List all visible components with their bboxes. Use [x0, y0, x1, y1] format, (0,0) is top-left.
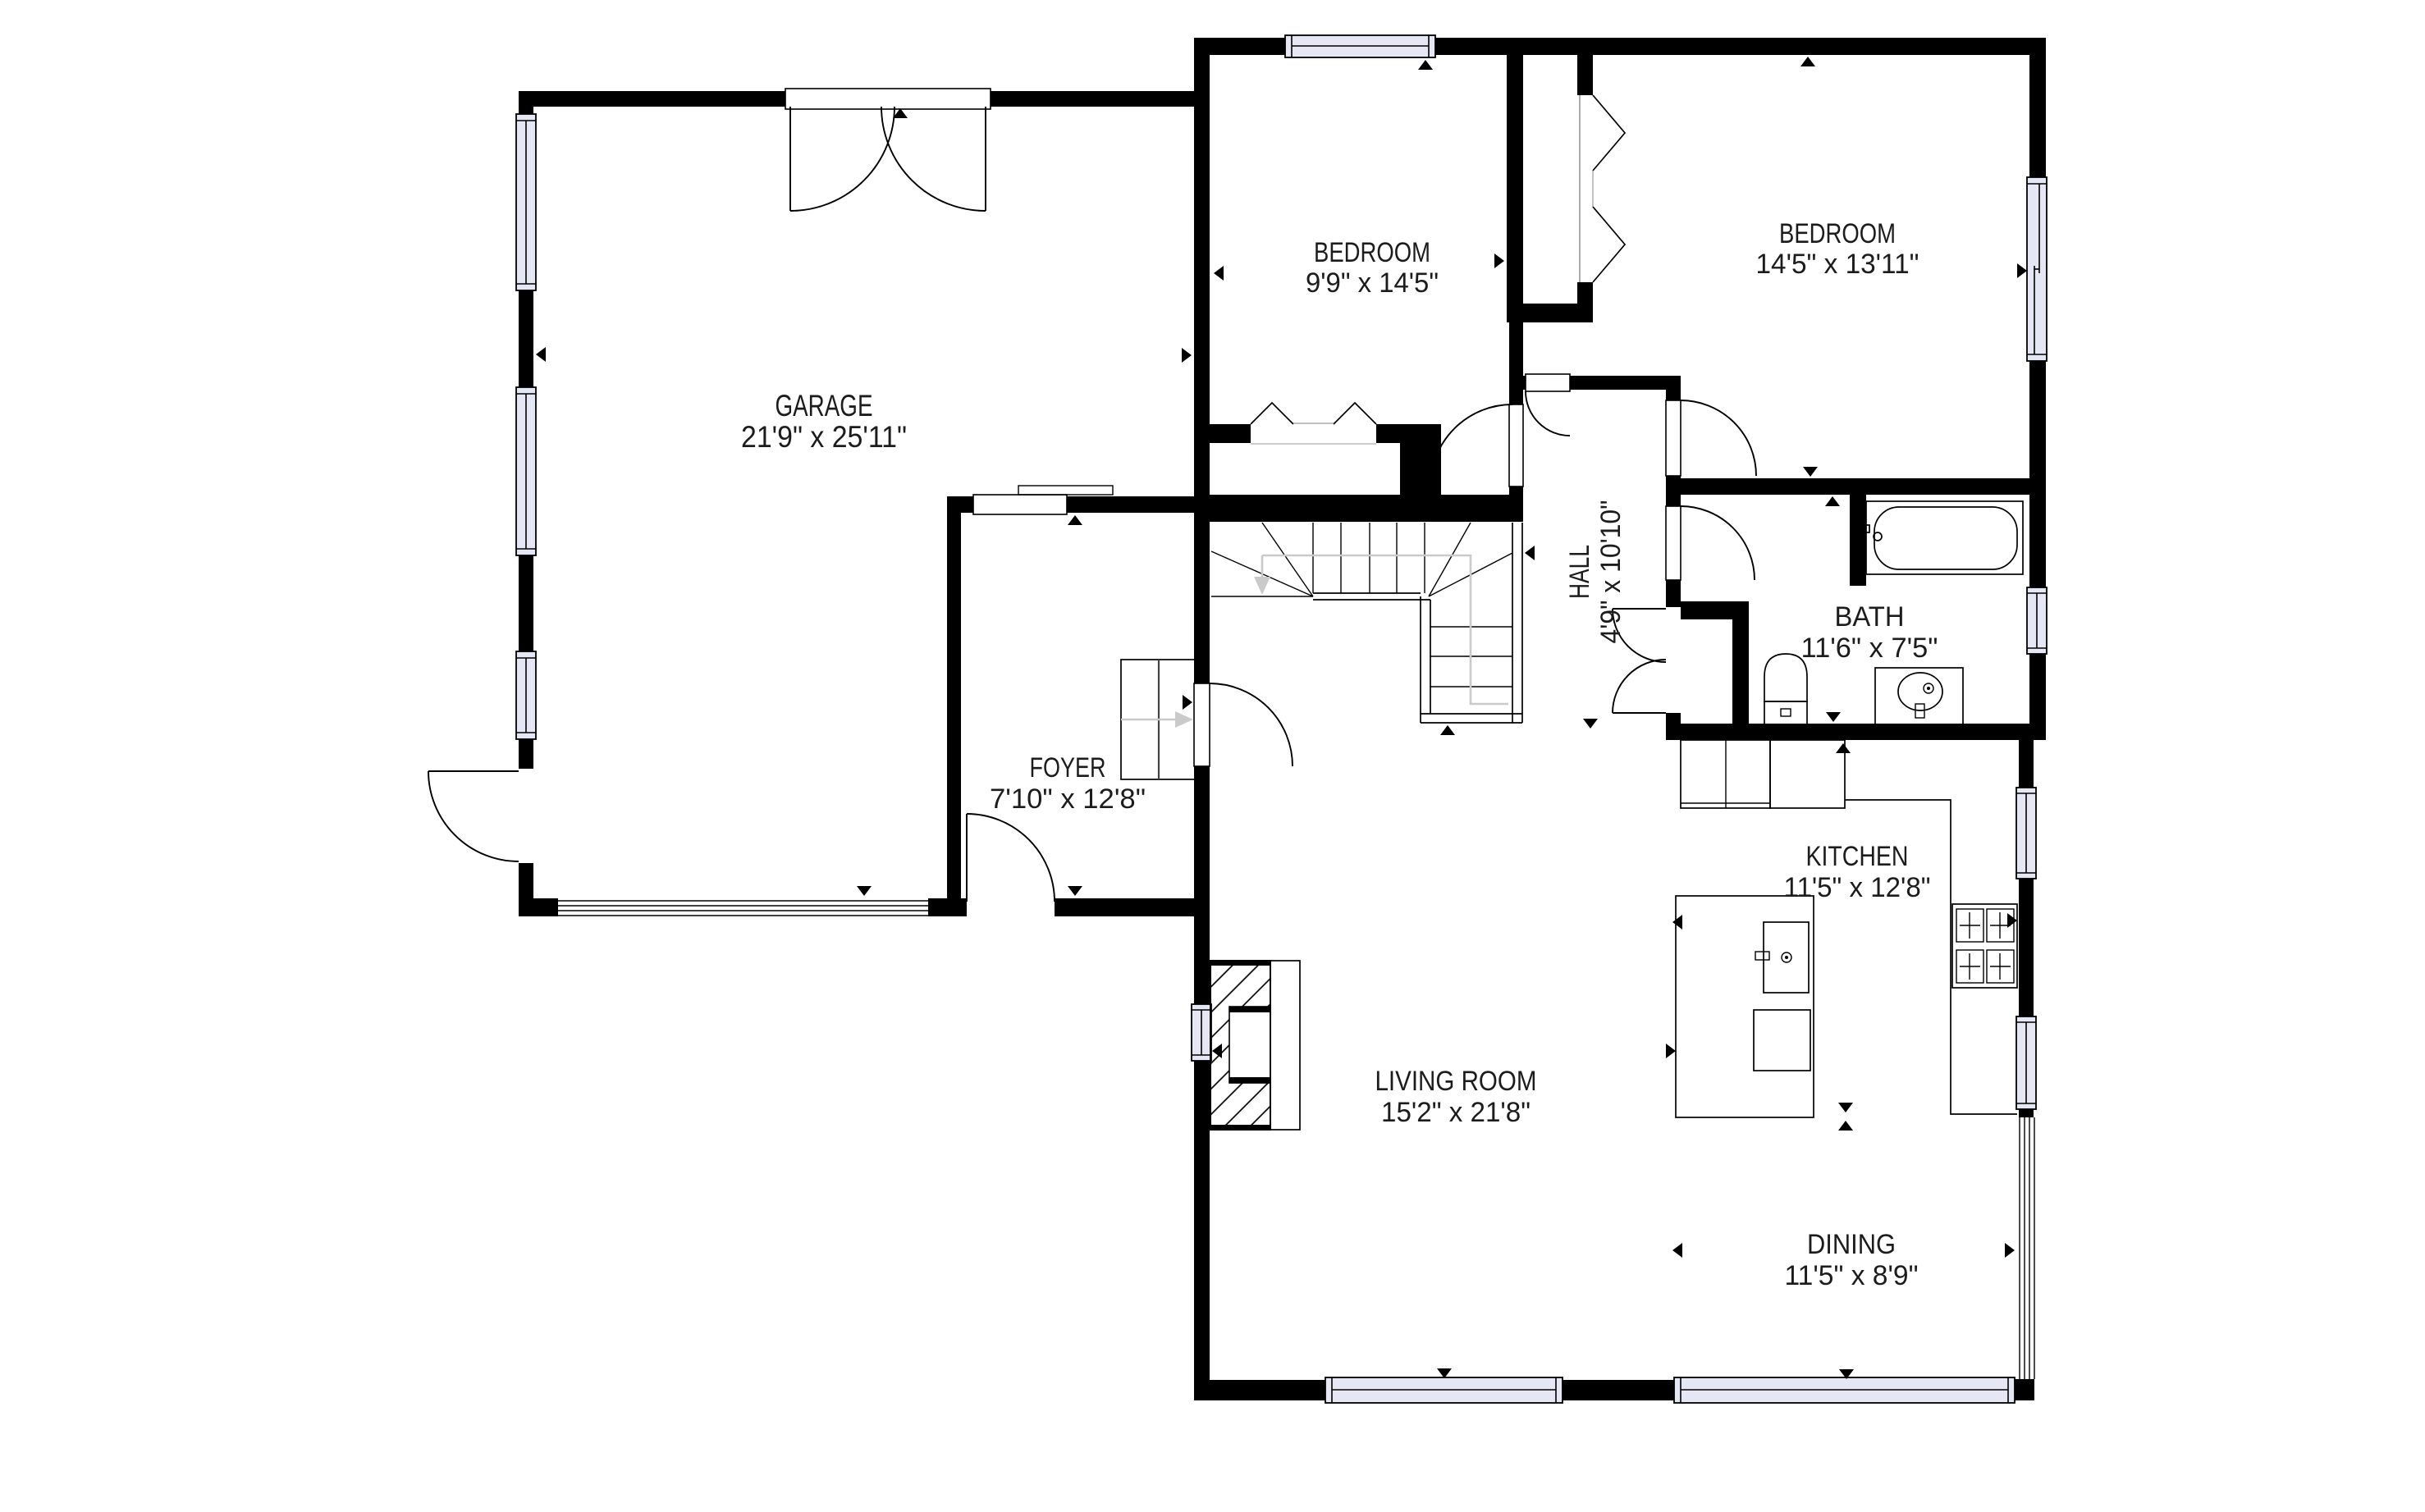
svg-text:15'2" x 21'8": 15'2" x 21'8"	[1381, 1097, 1530, 1128]
svg-text:9'9" x 14'5": 9'9" x 14'5"	[1306, 267, 1439, 299]
svg-text:BEDROOM: BEDROOM	[1314, 237, 1430, 268]
svg-text:21'9" x 25'11": 21'9" x 25'11"	[741, 420, 907, 454]
svg-text:4'9" x 10'10": 4'9" x 10'10"	[1595, 500, 1627, 644]
svg-text:FOYER: FOYER	[1030, 752, 1106, 783]
svg-text:11'5" x 8'9": 11'5" x 8'9"	[1785, 1260, 1919, 1291]
svg-text:11'6" x 7'5": 11'6" x 7'5"	[1801, 633, 1938, 664]
svg-text:BEDROOM: BEDROOM	[1779, 218, 1896, 249]
svg-text:HALL: HALL	[1564, 545, 1595, 599]
svg-text:14'5" x 13'11": 14'5" x 13'11"	[1756, 249, 1919, 280]
svg-text:GARAGE: GARAGE	[776, 389, 873, 423]
svg-text:11'5" x 12'8": 11'5" x 12'8"	[1784, 872, 1931, 903]
svg-text:KITCHEN: KITCHEN	[1806, 841, 1909, 872]
svg-text:7'10" x 12'8": 7'10" x 12'8"	[990, 783, 1146, 815]
svg-text:BATH: BATH	[1835, 601, 1905, 633]
svg-text:DINING: DINING	[1807, 1229, 1896, 1260]
svg-text:LIVING ROOM: LIVING ROOM	[1375, 1066, 1537, 1097]
